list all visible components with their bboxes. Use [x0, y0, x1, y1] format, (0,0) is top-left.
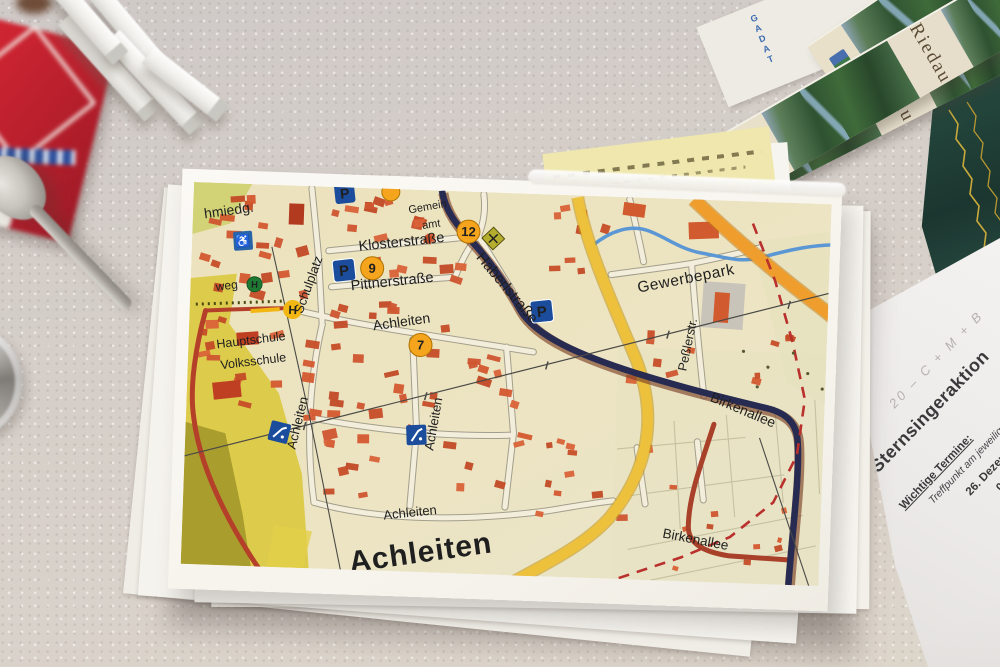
metal-tin: [0, 326, 22, 438]
marker-partial: [382, 183, 401, 202]
route-marker-7: 7: [409, 333, 433, 357]
envelope-text: GADAT: [748, 12, 778, 67]
svg-text:P: P: [339, 185, 350, 202]
town-map: P P P H ♿: [181, 182, 832, 586]
parking-icon-partial: P: [334, 182, 356, 204]
spoon-handle: [27, 202, 134, 312]
photo-scene: GADAT Riedau Riedau Riedau 20 – C + M + …: [0, 0, 1000, 667]
svg-text:H: H: [251, 280, 258, 291]
svg-text:P: P: [338, 262, 350, 280]
wc-accessible-icon: ♿: [233, 231, 253, 251]
brochure-title: Riedau: [904, 20, 956, 88]
svg-text:7: 7: [417, 337, 425, 352]
printed-map-sheet: P P P H ♿: [168, 169, 842, 612]
blurred-object: [16, 0, 52, 14]
svg-text:12: 12: [461, 224, 476, 239]
svg-text:♿: ♿: [235, 234, 251, 249]
hotel-icon: H: [247, 276, 263, 292]
svg-text:9: 9: [368, 261, 376, 276]
street-label-weg-partial: weg: [214, 277, 239, 294]
route-marker-12: 12: [457, 220, 481, 244]
